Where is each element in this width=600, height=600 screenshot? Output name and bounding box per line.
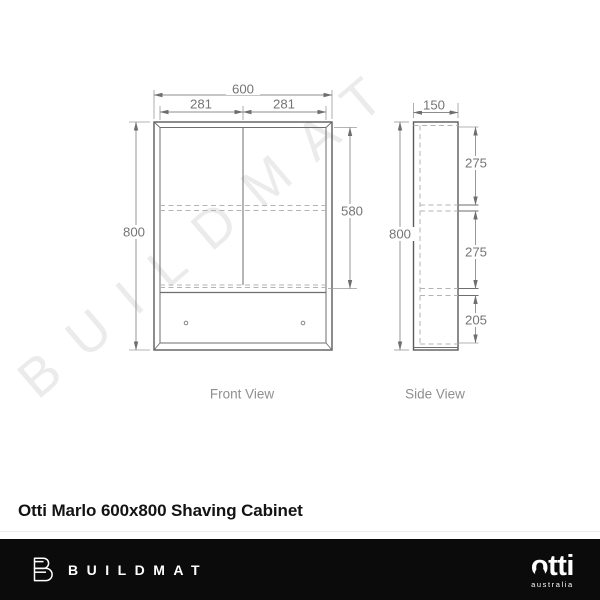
front-door-height-dimension: 580 bbox=[341, 204, 363, 219]
side-bottom-section-dimension: 205 bbox=[465, 313, 487, 328]
otti-logo: otti australia bbox=[531, 552, 574, 589]
side-middle-section-dimension: 275 bbox=[465, 245, 487, 260]
front-view-label: Front View bbox=[210, 387, 275, 402]
side-depth-dimension: 150 bbox=[423, 98, 445, 113]
front-height-dimension: 800 bbox=[123, 225, 145, 240]
front-width-dimension: 600 bbox=[232, 82, 254, 97]
front-left-hole bbox=[184, 321, 188, 325]
front-left-door-dimension: 281 bbox=[190, 97, 212, 112]
side-dashed-lines bbox=[414, 126, 459, 345]
divider-line bbox=[0, 531, 600, 532]
otti-wordmark: otti bbox=[531, 552, 574, 580]
product-title: Otti Marlo 600x800 Shaving Cabinet bbox=[18, 501, 303, 521]
front-right-door-dimension: 281 bbox=[273, 97, 295, 112]
technical-drawing: 600 281 281 800 580 Front View bbox=[0, 0, 600, 460]
front-right-hole bbox=[301, 321, 305, 325]
side-view: 150 800 275 275 205 Side View bbox=[384, 98, 492, 402]
buildmat-towels-icon bbox=[31, 557, 55, 582]
side-height-dimension: 800 bbox=[389, 227, 411, 242]
buildmat-wordmark: BUILDMAT bbox=[68, 562, 208, 578]
side-view-label: Side View bbox=[405, 387, 465, 402]
side-top-section-dimension: 275 bbox=[465, 156, 487, 171]
page: BUILDMAT bbox=[0, 0, 600, 600]
buildmat-logo: BUILDMAT bbox=[31, 557, 208, 582]
otti-droplet-icon bbox=[535, 565, 545, 577]
front-view: 600 281 281 800 580 Front View bbox=[118, 82, 368, 402]
footer: BUILDMAT otti australia bbox=[0, 539, 600, 600]
